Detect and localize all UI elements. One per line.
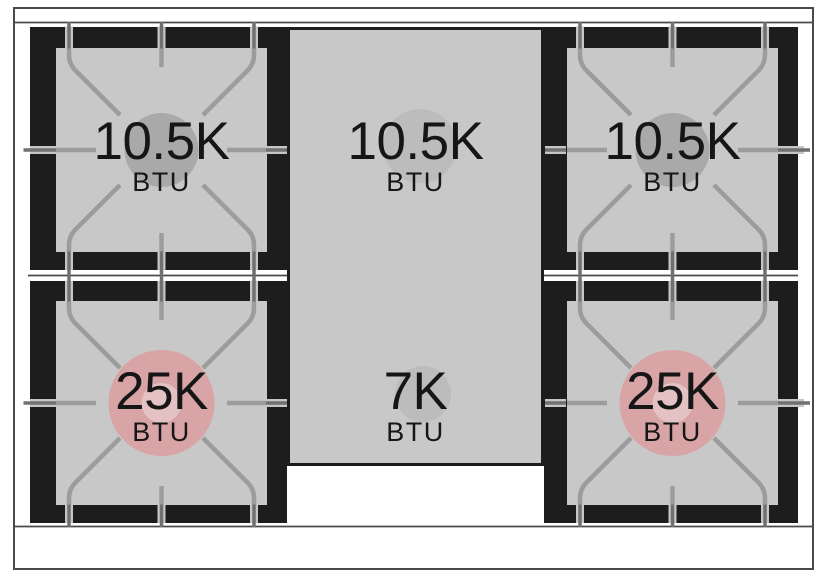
burner-bottom-left-label: 25K BTU [56,366,267,446]
burner-bottom-right-label: 25K BTU [567,366,778,446]
burner-top-right-label: 10.5K BTU [567,116,778,196]
burner-output-unit: BTU [287,168,544,196]
burner-output-value: 10.5K [567,116,778,168]
burner-output-value: 25K [567,366,778,418]
burner-output-unit: BTU [567,418,778,446]
griddle-front-cutout [289,466,542,527]
burner-output-unit: BTU [287,418,544,446]
burner-output-unit: BTU [567,168,778,196]
burner-output-unit: BTU [56,418,267,446]
cooktop-diagram: 10.5K BTU 10.5K BTU 10.5K BTU 25K BTU 7K… [0,0,824,584]
burner-top-center-label: 10.5K BTU [287,116,544,196]
cooktop-graphic [0,0,824,584]
burner-output-value: 10.5K [56,116,267,168]
burner-output-value: 10.5K [287,116,544,168]
burner-top-left-label: 10.5K BTU [56,116,267,196]
burner-output-unit: BTU [56,168,267,196]
burner-bottom-center-label: 7K BTU [287,366,544,446]
burner-output-value: 25K [56,366,267,418]
burner-output-value: 7K [287,366,544,418]
